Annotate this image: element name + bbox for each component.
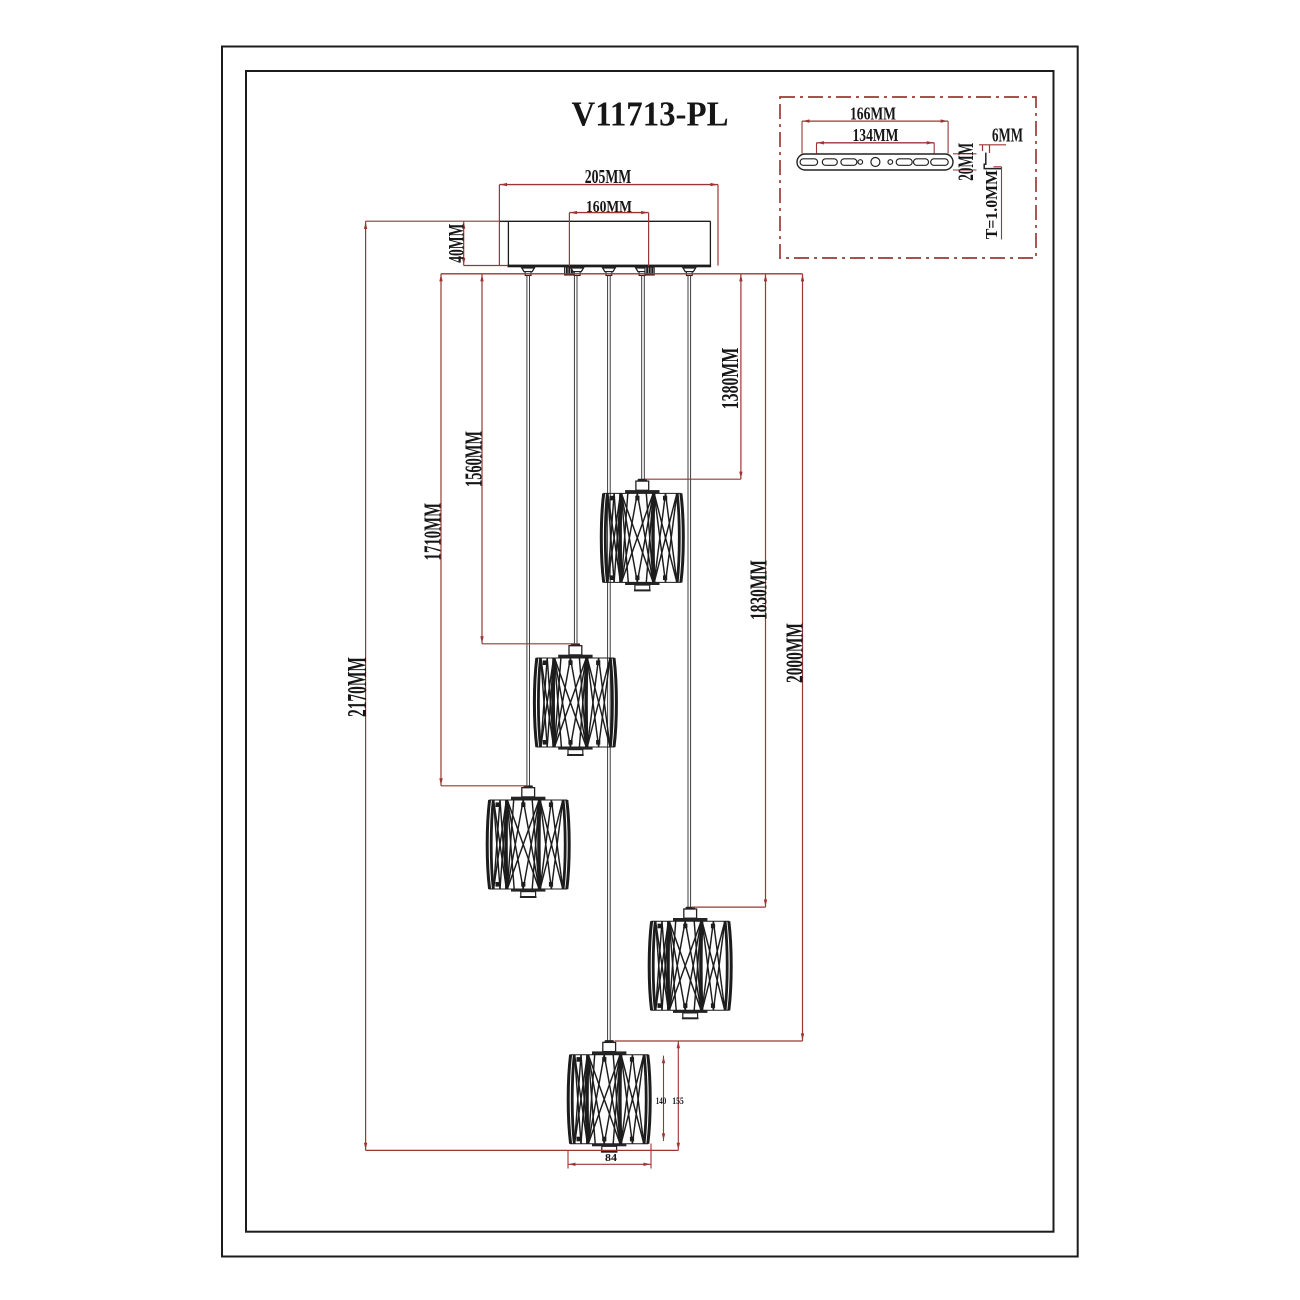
svg-text:134MM: 134MM <box>853 125 899 145</box>
svg-text:155: 155 <box>672 1096 684 1106</box>
svg-text:40MM: 40MM <box>444 224 469 263</box>
svg-text:1710MM: 1710MM <box>420 503 447 561</box>
svg-text:2000MM: 2000MM <box>782 623 809 683</box>
svg-text:20MM: 20MM <box>953 143 978 181</box>
svg-text:1560MM: 1560MM <box>461 431 488 487</box>
svg-text:V11713-PL: V11713-PL <box>572 95 729 134</box>
svg-text:205MM: 205MM <box>585 167 632 188</box>
svg-text:6MM: 6MM <box>992 126 1023 147</box>
svg-text:160MM: 160MM <box>586 197 632 216</box>
svg-text:140: 140 <box>656 1096 667 1106</box>
svg-text:2170MM: 2170MM <box>342 657 372 717</box>
svg-text:1830MM: 1830MM <box>746 560 773 620</box>
svg-text:166MM: 166MM <box>850 104 896 124</box>
svg-text:T=1.0MM: T=1.0MM <box>982 170 1001 239</box>
svg-text:1380MM: 1380MM <box>717 348 744 410</box>
svg-text:84: 84 <box>605 1153 618 1164</box>
